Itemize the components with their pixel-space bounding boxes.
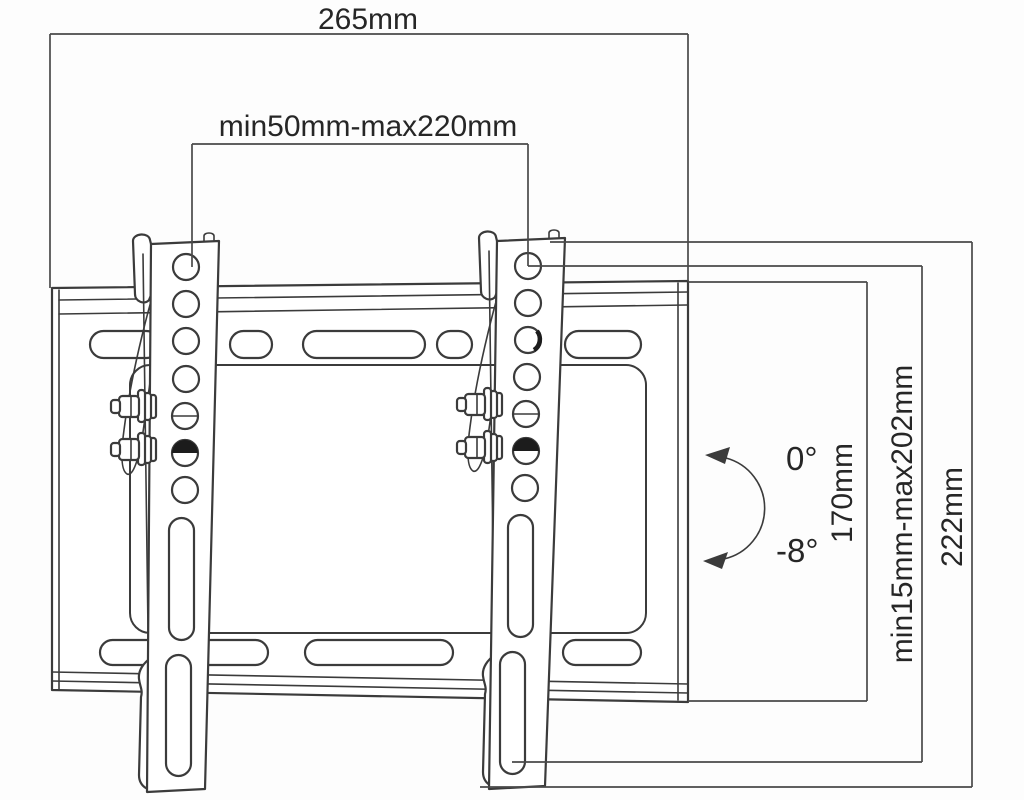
vesa-hole bbox=[172, 477, 198, 503]
vesa-hole bbox=[512, 475, 538, 501]
dimension-vesa-height-label: min15mm-max202mm bbox=[886, 365, 919, 663]
tilt-upper-label: 0° bbox=[786, 440, 818, 477]
arm-top-tab-left bbox=[204, 233, 214, 241]
tilt-arc bbox=[724, 458, 765, 559]
vesa-hole bbox=[173, 366, 199, 392]
technical-drawing-page: 0° -8° 265mm min50mm-max220mm 170mm min1… bbox=[0, 0, 1024, 800]
tilt-range-indicator: 0° -8° bbox=[703, 440, 819, 569]
adjustment-slot bbox=[166, 655, 191, 776]
dimension-vesa-width-label: min50mm-max220mm bbox=[219, 110, 517, 143]
vesa-hole bbox=[173, 291, 199, 317]
wall-slot bbox=[230, 331, 272, 358]
wall-slot bbox=[305, 640, 453, 665]
tilt-arrow-down-icon bbox=[703, 552, 728, 569]
wall-mount-technical-drawing: 0° -8° 265mm min50mm-max220mm 170mm min1… bbox=[0, 0, 1024, 800]
arm-top-tab-right bbox=[549, 230, 559, 238]
adjustment-slot bbox=[508, 515, 533, 637]
vesa-hole bbox=[514, 364, 540, 390]
tilt-lower-label: -8° bbox=[776, 532, 819, 569]
dimension-vesa-width-lines bbox=[192, 144, 528, 267]
dimension-overall-width-label: 265mm bbox=[318, 3, 418, 36]
dimension-overall-height-label: 222mm bbox=[936, 467, 969, 567]
adjustment-slot bbox=[500, 652, 525, 774]
vesa-hole bbox=[173, 254, 199, 280]
wall-slot bbox=[437, 331, 472, 358]
wall-slot bbox=[565, 331, 641, 358]
adjustment-slot bbox=[169, 518, 194, 640]
vesa-hole bbox=[515, 290, 541, 316]
wall-slot bbox=[303, 331, 425, 358]
vesa-hole bbox=[173, 328, 199, 354]
dimension-plate-height-label: 170mm bbox=[826, 443, 859, 543]
tilt-arrow-up-icon bbox=[705, 447, 730, 464]
wall-slot bbox=[563, 640, 641, 665]
